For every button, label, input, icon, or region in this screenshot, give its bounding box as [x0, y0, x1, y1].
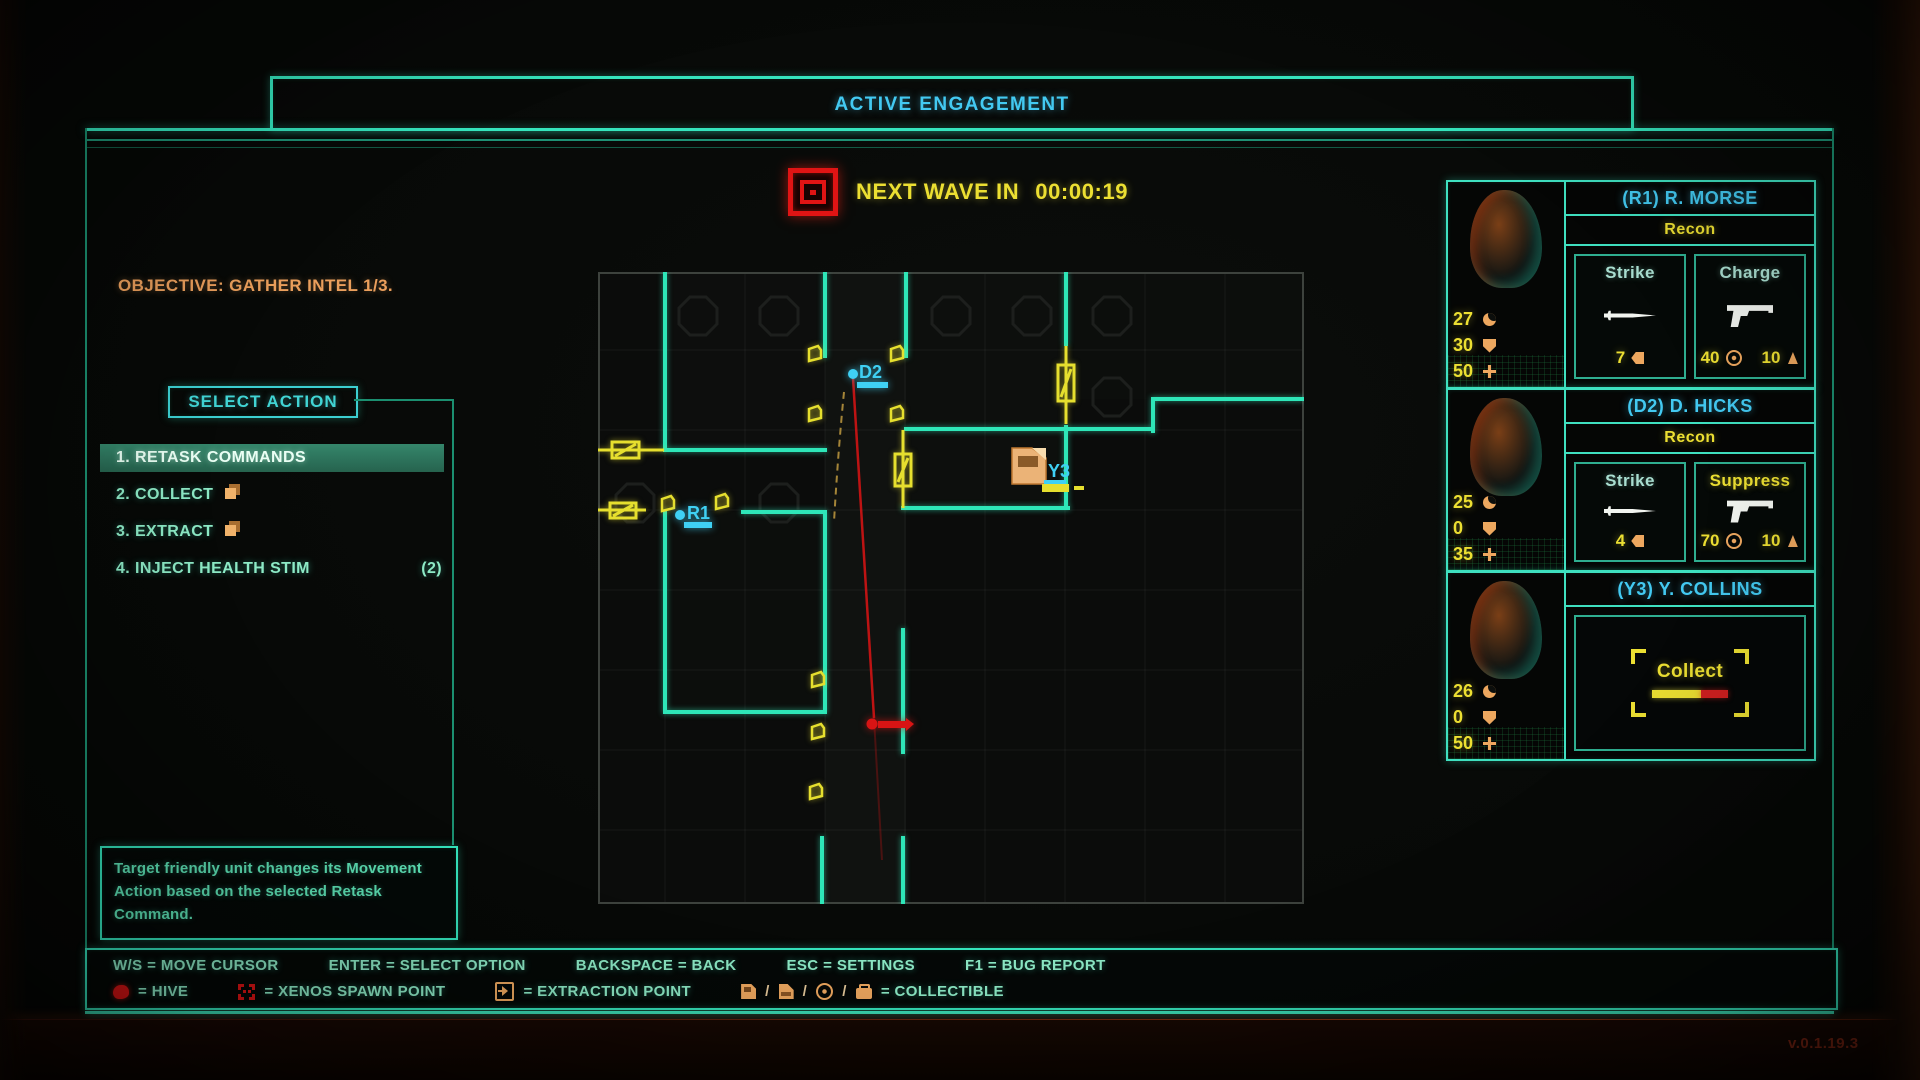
document-icon — [779, 984, 794, 999]
next-wave-label: NEXT WAVE IN — [856, 179, 1019, 205]
stat-move: 25 — [1453, 492, 1496, 513]
radius-icon — [1786, 535, 1799, 547]
unit-class: Recon — [1566, 424, 1814, 454]
stat-value: 35 — [1453, 544, 1477, 565]
ammo-icon — [1631, 352, 1644, 364]
menu-item-label: 2. COLLECT — [116, 486, 213, 504]
unit-portrait: 26 0 50 — [1448, 573, 1566, 759]
menu-item-retask-commands[interactable]: 1. RETASK COMMANDS — [100, 444, 444, 472]
health-icon — [1483, 548, 1496, 561]
unit-stats: 26 0 50 — [1453, 681, 1496, 754]
tactical-map[interactable]: Y3 D2 R1 — [598, 272, 1304, 904]
ability-title: Strike — [1605, 263, 1655, 283]
select-action-title: SELECT ACTION — [188, 392, 337, 412]
unit-portrait: 27 30 50 — [1448, 182, 1566, 387]
bezel-right — [1872, 0, 1920, 1080]
move-icon — [1483, 313, 1496, 326]
unit-name: (D2) D. HICKS — [1566, 390, 1814, 424]
disc-icon — [816, 983, 833, 1000]
stat-value: 50 — [1453, 733, 1477, 754]
separator: / — [842, 983, 847, 1000]
stat-armor: 30 — [1453, 335, 1496, 356]
ability-row: Strike 4 Suppress 7010 — [1566, 454, 1814, 570]
icon-part — [800, 180, 826, 204]
extraction-point-icon — [495, 982, 514, 1001]
unit-label-d2: D2 — [859, 362, 882, 382]
stat-value: 30 — [1453, 335, 1477, 356]
progress-remainder — [1701, 690, 1728, 698]
pistol-icon — [1727, 498, 1773, 524]
unit-portrait: 25 0 35 — [1448, 390, 1566, 570]
unit-stats: 25 0 35 — [1453, 492, 1496, 565]
control-select-option: ENTER = SELECT OPTION — [329, 957, 526, 974]
next-wave-banner: NEXT WAVE IN 00:00:19 — [788, 168, 1128, 216]
stat-value: 50 — [1453, 361, 1477, 382]
stat-health: 50 — [1453, 733, 1496, 754]
progress-fill — [1652, 690, 1701, 698]
unit-class: Recon — [1566, 216, 1814, 246]
stim-count-badge: (2) — [421, 560, 442, 578]
ability-accuracy: 40 — [1701, 348, 1720, 368]
legend-label: = COLLECTIBLE — [881, 983, 1004, 1000]
unit-label-r1: R1 — [687, 503, 710, 523]
frame-line-low — [85, 147, 1834, 148]
legend-hive: = HIVE — [113, 983, 188, 1000]
collect-action-area: Collect — [1566, 607, 1814, 759]
ability-charge[interactable]: Charge 4010 — [1694, 254, 1806, 379]
legend-extraction: = EXTRACTION POINT — [495, 982, 691, 1001]
game-screen: ACTIVE ENGAGEMENT NEXT WAVE IN 00:00:19 … — [0, 0, 1920, 1080]
stat-value: 0 — [1453, 518, 1477, 539]
symbols-legend-row: = HIVE = XENOS SPAWN POINT = EXTRACTION … — [113, 982, 1004, 1001]
legend-label: = XENOS SPAWN POINT — [264, 983, 445, 1000]
ability-title: Suppress — [1710, 471, 1791, 491]
header-tab: ACTIVE ENGAGEMENT — [270, 76, 1634, 131]
legend-label: = HIVE — [138, 983, 188, 1000]
bezel-left — [0, 0, 26, 1080]
collect-label: Collect — [1657, 661, 1723, 683]
frame-line-bottom — [85, 1011, 1834, 1014]
stat-move: 27 — [1453, 309, 1496, 330]
armor-icon — [1483, 711, 1496, 725]
objective-text: OBJECTIVE: GATHER INTEL 1/3. — [118, 276, 393, 296]
knife-icon — [1604, 504, 1656, 518]
case-icon — [856, 988, 872, 999]
accuracy-icon — [1726, 533, 1742, 549]
ability-radius: 10 — [1762, 348, 1781, 368]
health-icon — [1483, 737, 1496, 750]
unit-card-morse[interactable]: 27 30 50 (R1) R. MORSE Recon Strike 7 Ch… — [1446, 180, 1816, 389]
controls-legend-row: W/S = MOVE CURSOR ENTER = SELECT OPTION … — [113, 957, 1106, 974]
panel-connector-v — [452, 399, 454, 845]
next-wave-timer: 00:00:19 — [1035, 179, 1128, 205]
menu-item-label: 4. INJECT HEALTH STIM — [116, 560, 310, 578]
collect-progress-bar — [1652, 690, 1728, 698]
frame-line-top — [85, 128, 1834, 131]
ability-radius: 10 — [1762, 531, 1781, 551]
frame-line-left — [85, 128, 87, 950]
unit-card-collins[interactable]: 26 0 50 (Y3) Y. COLLINS Collect — [1446, 571, 1816, 761]
control-back: BACKSPACE = BACK — [576, 957, 737, 974]
move-icon — [1483, 685, 1496, 698]
ability-strike[interactable]: Strike 7 — [1574, 254, 1686, 379]
unit-label-y3: Y3 — [1048, 461, 1070, 481]
version-text: v.0.1.19.3 — [1788, 1035, 1859, 1052]
disk-icon — [741, 984, 756, 999]
health-icon — [1483, 365, 1496, 378]
panel-connector-h — [354, 399, 454, 401]
stat-armor: 0 — [1453, 518, 1496, 539]
stat-value: 27 — [1453, 309, 1477, 330]
tooltip-text: Target friendly unit changes its Movemen… — [114, 860, 422, 923]
armor-icon — [1483, 339, 1496, 353]
menu-item-extract[interactable]: 3. EXTRACT — [100, 518, 444, 546]
ability-suppress[interactable]: Suppress 7010 — [1694, 462, 1806, 562]
unit-card-hicks[interactable]: 25 0 35 (D2) D. HICKS Recon Strike 4 Sup… — [1446, 388, 1816, 572]
stat-move: 26 — [1453, 681, 1496, 702]
ability-row: Strike 7 Charge 4010 — [1566, 246, 1814, 387]
stat-health: 50 — [1453, 361, 1496, 382]
ability-strike[interactable]: Strike 4 — [1574, 462, 1686, 562]
unit-card-body: (Y3) Y. COLLINS Collect — [1566, 573, 1814, 759]
tactical-map-svg: Y3 D2 R1 — [598, 272, 1304, 904]
control-bug-report: F1 = BUG REPORT — [965, 957, 1106, 974]
stat-armor: 0 — [1453, 707, 1496, 728]
stat-value: 25 — [1453, 492, 1477, 513]
ability-cost: 4 — [1616, 531, 1625, 551]
armor-icon — [1483, 522, 1496, 536]
ability-title: Charge — [1720, 263, 1781, 283]
bezel-bottom — [0, 1020, 1920, 1080]
ability-accuracy: 70 — [1701, 531, 1720, 551]
menu-item-label: 3. EXTRACT — [116, 523, 213, 541]
control-move-cursor: W/S = MOVE CURSOR — [113, 957, 279, 974]
unit-name: (Y3) Y. COLLINS — [1566, 573, 1814, 607]
legend-label: = EXTRACTION POINT — [523, 983, 691, 1000]
unit-name: (R1) R. MORSE — [1566, 182, 1814, 216]
stat-value: 0 — [1453, 707, 1477, 728]
legend-xenos-spawn: = XENOS SPAWN POINT — [238, 983, 445, 1000]
menu-item-inject-health-stim[interactable]: 4. INJECT HEALTH STIM (2) — [100, 555, 444, 583]
action-tooltip: Target friendly unit changes its Movemen… — [100, 846, 458, 940]
legend-collectible: / / / = COLLECTIBLE — [741, 983, 1004, 1000]
collectible-pages-icon — [225, 488, 236, 499]
collect-brackets: Collect — [1631, 649, 1749, 717]
stat-health: 35 — [1453, 544, 1496, 565]
pistol-icon — [1727, 303, 1773, 329]
accuracy-icon — [1726, 350, 1742, 366]
unit-card-body: (R1) R. MORSE Recon Strike 7 Charge 4010 — [1566, 182, 1814, 387]
radius-icon — [1786, 352, 1799, 364]
ammo-icon — [1631, 535, 1644, 547]
frame-line-right — [1832, 128, 1834, 950]
separator: / — [765, 983, 770, 1000]
action-menu: 1. RETASK COMMANDS 2. COLLECT 3. EXTRACT… — [100, 444, 444, 592]
menu-item-label: 1. RETASK COMMANDS — [116, 449, 306, 467]
select-action-header: SELECT ACTION — [168, 386, 358, 418]
xenos-spawn-warning-icon — [788, 168, 838, 216]
ability-title: Strike — [1605, 471, 1655, 491]
control-settings: ESC = SETTINGS — [787, 957, 916, 974]
collectible-pages-icon — [225, 525, 236, 536]
icon-part — [810, 190, 816, 195]
stat-value: 26 — [1453, 681, 1477, 702]
xenos-spawn-icon — [238, 984, 255, 1000]
legend-bar: W/S = MOVE CURSOR ENTER = SELECT OPTION … — [85, 948, 1838, 1010]
collect-action-box[interactable]: Collect — [1574, 615, 1806, 751]
menu-item-collect[interactable]: 2. COLLECT — [100, 481, 444, 509]
unit-stats: 27 30 50 — [1453, 309, 1496, 382]
knife-icon — [1604, 309, 1656, 323]
ability-cost: 7 — [1616, 348, 1625, 368]
hive-icon — [113, 985, 129, 999]
move-icon — [1483, 496, 1496, 509]
frame-line-mid — [85, 139, 1834, 141]
page-title: ACTIVE ENGAGEMENT — [835, 94, 1070, 116]
unit-card-body: (D2) D. HICKS Recon Strike 4 Suppress 70… — [1566, 390, 1814, 570]
separator: / — [803, 983, 808, 1000]
